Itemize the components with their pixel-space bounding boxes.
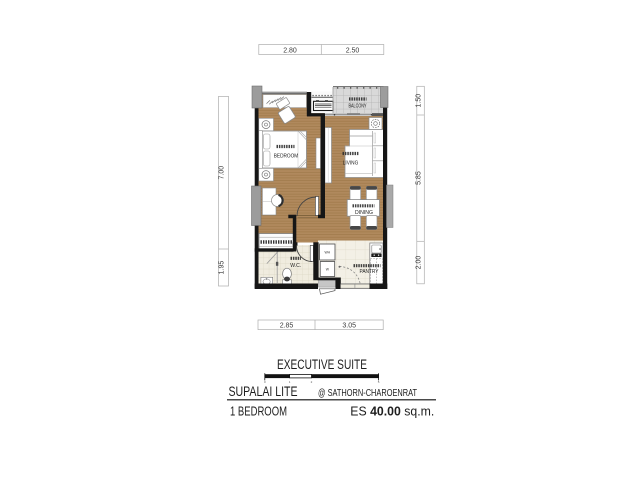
svg-text:1 BEDROOM: 1 BEDROOM xyxy=(230,403,287,418)
svg-text:SUPALAI LITE: SUPALAI LITE xyxy=(229,384,298,400)
svg-text:2.80: 2.80 xyxy=(283,48,297,55)
svg-text:1.95: 1.95 xyxy=(219,261,226,275)
svg-text:PANTRY: PANTRY xyxy=(360,269,379,275)
svg-text:LIVING: LIVING xyxy=(343,161,359,167)
svg-text:1.50: 1.50 xyxy=(416,94,423,108)
svg-text:2.00: 2.00 xyxy=(416,256,423,270)
svg-text:2.50: 2.50 xyxy=(346,48,360,55)
svg-text:7.00: 7.00 xyxy=(219,166,226,180)
svg-text:WH: WH xyxy=(324,251,330,255)
svg-text:3.05: 3.05 xyxy=(342,323,356,330)
svg-text:@ SATHORN-CHAROENRAT: @ SATHORN-CHAROENRAT xyxy=(318,388,417,399)
svg-text:ES 40.00 sq.m.: ES 40.00 sq.m. xyxy=(350,403,434,418)
svg-text:BALCONY: BALCONY xyxy=(349,103,367,109)
svg-text:BEDROOM: BEDROOM xyxy=(274,154,299,160)
svg-text:5.85: 5.85 xyxy=(416,171,423,185)
svg-text:EXECUTIVE SUITE: EXECUTIVE SUITE xyxy=(277,357,367,373)
svg-text:2.85: 2.85 xyxy=(280,323,294,330)
svg-text:W.C.: W.C. xyxy=(290,263,301,269)
